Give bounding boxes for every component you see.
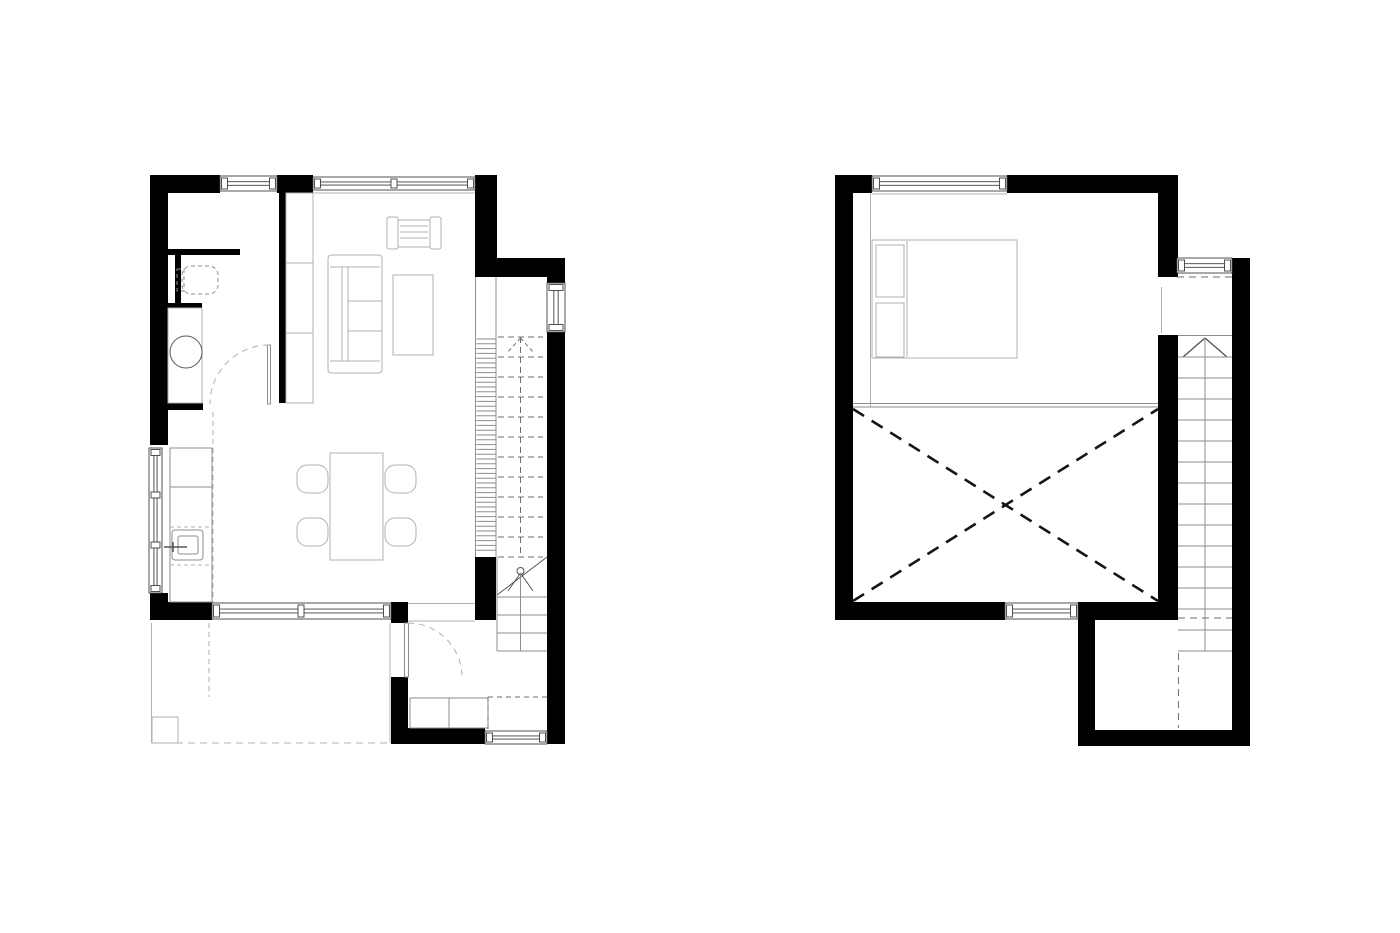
window-top-long	[313, 177, 475, 190]
outer-wall-left	[150, 175, 168, 445]
outer-wall-top-b	[277, 175, 313, 193]
window-frame	[1005, 603, 1078, 619]
bathroom-door-leaf	[268, 345, 271, 404]
bed	[872, 240, 1017, 358]
window-frame	[220, 176, 277, 191]
window-cap	[391, 179, 397, 188]
upper-floor-plan	[835, 175, 1250, 746]
shaft-wall-west	[1078, 620, 1095, 746]
toilet	[182, 266, 218, 294]
window-bottom-long	[212, 603, 391, 619]
wall-right-upper	[1158, 175, 1178, 277]
stair-up-arrow	[1183, 338, 1205, 357]
window-cap	[549, 325, 563, 331]
hall-wardrobe	[286, 193, 313, 403]
outer-wall-bottom-block	[391, 602, 408, 623]
outer-wall-bottom-a	[150, 602, 212, 620]
bed-pillow	[876, 303, 904, 357]
window-cap	[315, 179, 321, 188]
armchair-arm	[430, 217, 441, 249]
window-cap	[1179, 260, 1185, 271]
stair-up-arrow	[1205, 338, 1227, 357]
ground-floor-plan	[149, 175, 565, 744]
window-cap	[1007, 605, 1013, 617]
toilet-niche-wall-west	[175, 255, 181, 305]
window-frame	[149, 448, 162, 593]
window-cap	[384, 605, 390, 617]
window-cap	[270, 178, 276, 189]
entry-door-leaf	[405, 623, 409, 677]
outer-wall-top-b	[1007, 175, 1178, 193]
entry-wall-bottom	[405, 728, 485, 744]
window-cap	[151, 542, 160, 548]
window-cap	[1225, 260, 1231, 271]
outer-wall-stair-east-b	[547, 332, 565, 744]
outer-wall-stair-east-a	[547, 277, 565, 283]
stair-winder-line	[521, 573, 534, 591]
bathroom-wall-south	[168, 403, 203, 410]
window-cap	[874, 178, 880, 189]
shaft-wall-east	[1232, 258, 1250, 746]
window-cap	[468, 179, 474, 188]
shaft-wall-bottom	[1078, 730, 1250, 746]
window-frame	[872, 176, 1007, 191]
kitchen-counter	[170, 448, 212, 602]
bathroom-stub-wall	[168, 249, 240, 255]
outer-wall-bottom-east	[1078, 602, 1178, 620]
stair-up-arrow	[507, 338, 521, 353]
dining-chair	[385, 518, 416, 546]
dining-chair	[385, 465, 416, 493]
stair-lower-treads	[497, 597, 547, 651]
armchair-arm	[387, 217, 398, 249]
window-frame	[485, 731, 547, 744]
dining-chair	[297, 465, 328, 493]
window-cap	[1071, 605, 1077, 617]
window-landing-south	[1005, 603, 1078, 619]
stair-side-hatch	[477, 339, 496, 550]
window-cap	[151, 586, 160, 592]
outer-wall-bottom	[835, 602, 1005, 620]
outer-wall-left	[835, 175, 853, 620]
entry-door-swing	[408, 623, 462, 677]
terrace-planter	[152, 717, 178, 743]
dining-table	[330, 453, 383, 560]
washbasin	[170, 336, 202, 368]
sofa	[328, 255, 382, 373]
dining-chair	[297, 518, 328, 546]
window-cap	[151, 450, 160, 456]
window-kitchen-west	[149, 448, 162, 593]
stair-up-arrow	[521, 338, 535, 353]
window-cap	[1000, 178, 1006, 189]
floor-plan-document	[0, 0, 1400, 933]
window-stair-east	[547, 283, 565, 332]
stair-extension-wall-top	[497, 258, 565, 277]
window-cap	[540, 733, 546, 742]
outer-wall-right-upper	[475, 175, 497, 277]
stair-winder-line	[508, 573, 521, 591]
bathroom-door-swing	[210, 345, 269, 404]
window-top-small	[220, 176, 277, 191]
kitchen-sink-basin	[178, 536, 198, 554]
coffee-table	[393, 275, 433, 355]
window-bedroom-north	[872, 176, 1007, 191]
bathroom-partition-wall	[279, 191, 286, 403]
stair-side-wall	[475, 557, 496, 620]
window-cap	[298, 605, 304, 617]
window-cap	[222, 178, 228, 189]
vanity-counter	[168, 308, 202, 403]
toilet-niche-wall-south	[168, 303, 202, 308]
window-frame	[1177, 258, 1232, 273]
window-cap	[487, 733, 493, 742]
bed-pillow	[876, 245, 904, 297]
armchair-seat	[398, 220, 430, 247]
floor-plan-canvas	[0, 0, 1400, 933]
window-stair-north	[1177, 258, 1232, 273]
window-cap	[549, 285, 563, 291]
window-entry-south	[485, 731, 547, 744]
window-cap	[214, 605, 220, 617]
window-cap	[151, 492, 160, 498]
wall-right-lower	[1158, 335, 1178, 620]
